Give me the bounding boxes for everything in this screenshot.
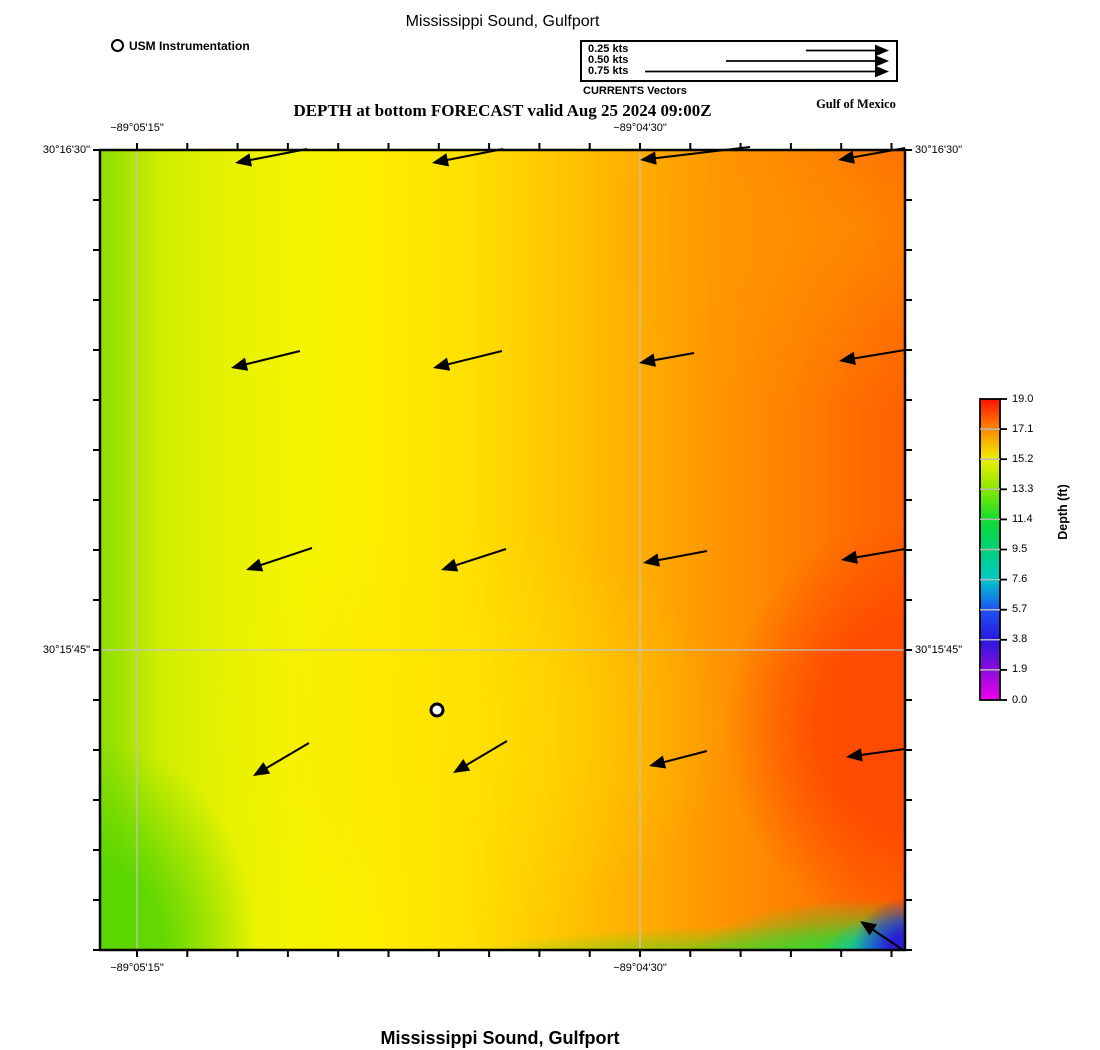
figure-footer-title: Mississippi Sound, Gulfport [0,1028,1000,1049]
colorbar-axis-label: Depth (ft) [1056,467,1070,557]
colorbar-tick-label: 11.4 [1012,513,1033,525]
currents-legend-box: 0.25 kts 0.50 kts 0.75 kts [580,40,898,82]
axis-label-lon2-bottom: −89°04'30" [590,962,690,974]
gulf-of-mexico-label: Gulf of Mexico [810,97,902,112]
forecast-figure: Mississippi Sound, Gulfport USM Instrume… [0,0,1100,1050]
depth-colorbar [980,399,1000,700]
station-marker-icon [111,39,124,52]
colorbar-tick-label: 0.0 [1012,694,1027,706]
colorbar-tick-label: 5.7 [1012,603,1027,615]
figure-title: Mississippi Sound, Gulfport [0,13,1005,31]
colorbar-tick-label: 3.8 [1012,633,1027,645]
currents-legend-caption: CURRENTS Vectors [583,85,687,97]
colorbar-tick-label: 9.5 [1012,543,1027,555]
colorbar-tick-label: 17.1 [1012,423,1033,435]
colorbar-tick-label: 19.0 [1012,393,1033,405]
axis-label-lat2-left: 30°15'45" [12,644,90,656]
speed-label-075: 0.75 kts [588,66,628,77]
usm-legend-label: USM Instrumentation [129,39,250,53]
colorbar-tick-label: 1.9 [1012,663,1027,675]
axis-label-lon2-top: −89°04'30" [590,122,690,134]
axis-label-lat1-right: 30°16'30" [915,144,995,156]
usm-legend: USM Instrumentation [111,38,250,53]
depth-heatmap [100,150,905,950]
axis-label-lon1-bottom: −89°05'15" [87,962,187,974]
axis-label-lat1-left: 30°16'30" [12,144,90,156]
colorbar-tick-label: 7.6 [1012,573,1027,585]
colorbar-tick-label: 13.3 [1012,483,1033,495]
axis-label-lon1-top: −89°05'15" [87,122,187,134]
colorbar-tick-label: 15.2 [1012,453,1033,465]
